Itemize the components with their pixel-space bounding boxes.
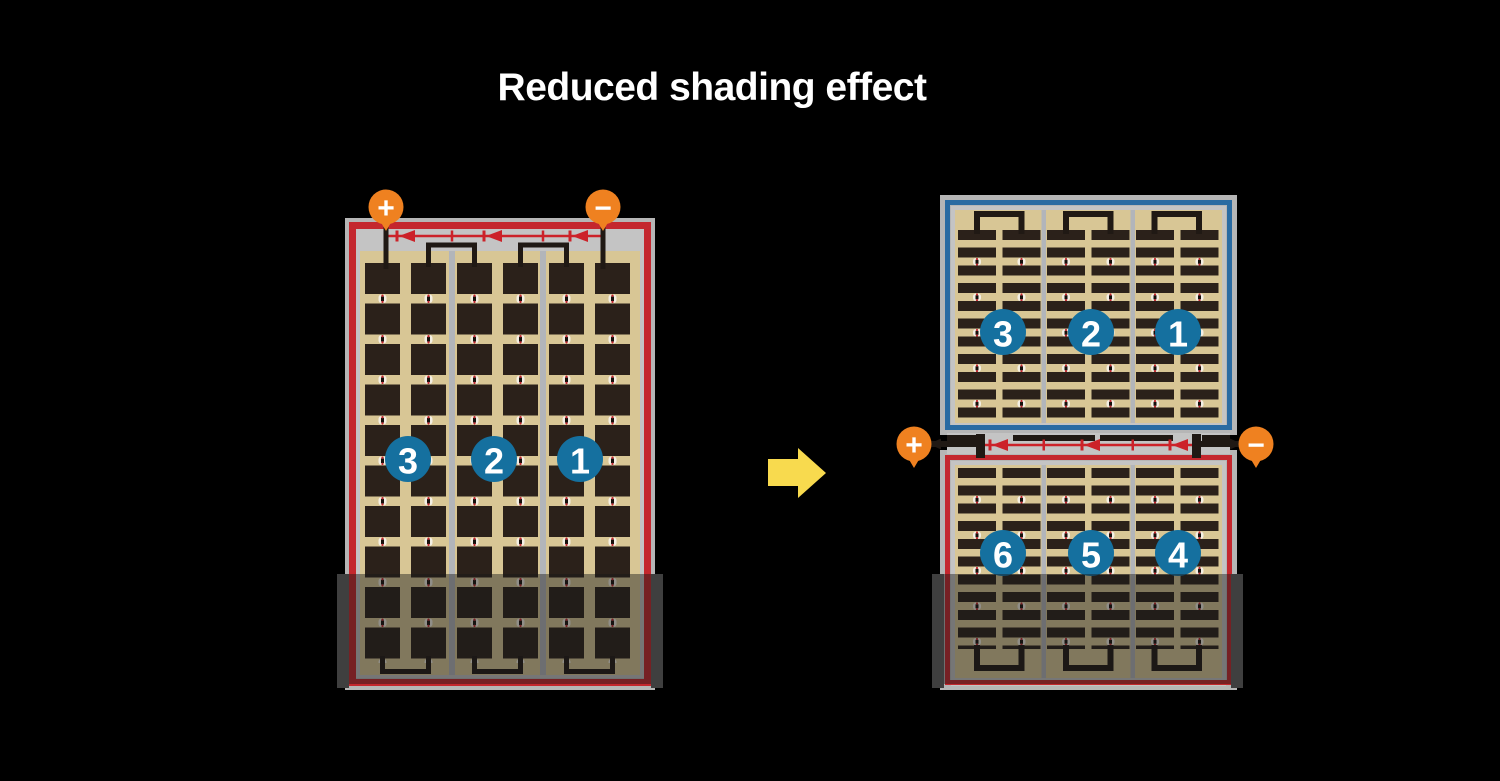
junction-bar-left <box>976 434 985 458</box>
left-shade-edge-left <box>337 574 349 688</box>
left-string-number-2: 2 <box>484 441 504 482</box>
left-diode-tap-2 <box>542 231 545 242</box>
right-module-top-half: 3 2 1 <box>940 195 1237 435</box>
left-positive-label: + <box>377 192 395 225</box>
right-negative-terminal: − <box>1239 427 1274 469</box>
right-shade-edge-right <box>1231 574 1243 688</box>
right-negative-label: − <box>1247 429 1265 462</box>
left-negative-label: − <box>594 192 612 225</box>
left-diode-tap-1 <box>451 231 454 242</box>
right-positive-label: + <box>905 429 923 462</box>
left-shade-edge-right <box>651 574 663 688</box>
bottom-string-badge-5: 5 <box>1068 530 1114 576</box>
top-string-badge-1: 1 <box>1155 309 1201 355</box>
left-string-number-1: 1 <box>570 441 590 482</box>
top-string-number-1: 1 <box>1168 314 1188 355</box>
top-string-number-2: 2 <box>1081 314 1101 355</box>
top-string-number-3: 3 <box>993 314 1013 355</box>
bottom-string-badge-4: 4 <box>1155 530 1201 576</box>
right-diode-tap-1 <box>1043 440 1046 451</box>
right-shade-overlay <box>932 574 1243 684</box>
left-string-badge-3: 3 <box>385 436 431 482</box>
bottom-string-badge-6: 6 <box>980 530 1026 576</box>
diagram-canvas: Reduced shading effect <box>0 0 1500 781</box>
right-arrow-icon <box>768 448 826 498</box>
left-shade-overlay <box>337 574 663 684</box>
top-string-badge-2: 2 <box>1068 309 1114 355</box>
left-string-badge-2: 2 <box>471 436 517 482</box>
left-string-number-3: 3 <box>398 441 418 482</box>
right-diode-tap-2 <box>1132 440 1135 451</box>
junction-lead-bar-4 <box>1202 435 1230 441</box>
right-positive-terminal: + <box>897 427 932 469</box>
bottom-string-number-5: 5 <box>1081 535 1101 576</box>
left-module: 3 2 1 + − <box>337 190 663 691</box>
shading-effect-diagram: 3 2 1 + − <box>0 0 1500 781</box>
top-string-badge-3: 3 <box>980 309 1026 355</box>
right-shade-edge-left <box>932 574 944 688</box>
junction-lead-bar-3 <box>1100 435 1173 441</box>
junction-bar-right <box>1192 434 1201 458</box>
bottom-string-number-6: 6 <box>993 535 1013 576</box>
right-module: 3 2 1 <box>897 195 1274 690</box>
bottom-string-number-4: 4 <box>1168 535 1188 576</box>
left-string-badge-1: 1 <box>557 436 603 482</box>
